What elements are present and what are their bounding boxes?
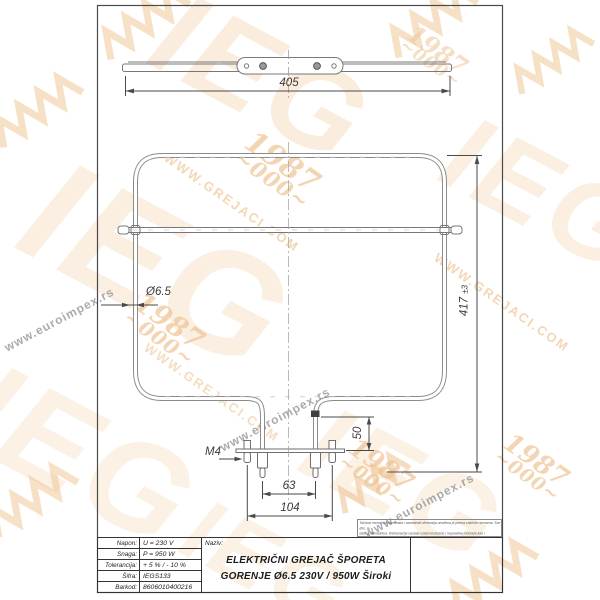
table-row: Snaga: P = 950 W [98,549,201,560]
title-block-empty-cell [410,538,502,592]
technical-drawing-page: IEG IEG IEG IEG IEG IEG 1987 ~000~ 1987 … [0,0,600,600]
dim-label-terminal-drop: 50 [352,419,364,447]
product-title-line2: GORENJE Ø6.5 230V / 950W Široki [202,571,410,582]
dim-label-terminal-spacing: 63 [269,480,309,492]
thread-leader [219,457,243,461]
spec-label-barkod: Barkod: [98,582,140,592]
spec-label-napon: Napon: [98,538,140,548]
spec-value-napon: U = 230 V [140,538,201,548]
spec-value-snaga: P = 950 W [140,549,201,559]
terminal-assembly [236,411,345,478]
title-block: Napon: U = 230 V Snaga: P = 950 W Tolera… [97,537,503,593]
product-title-line1: ELEKTRIČNI GREJAČ ŠPORETA [202,555,410,566]
bolt-right [329,453,336,463]
dim-label-height: 417 ±3 [459,271,474,331]
mounting-plate [236,449,345,453]
table-row: Napon: U = 230 V [98,538,201,549]
bolt-left [244,441,251,450]
leg-clip-mark [311,411,320,418]
table-row: Tolerancija: + 5 % / - 10 % [98,560,201,571]
spec-table: Napon: U = 230 V Snaga: P = 950 W Tolera… [98,538,201,592]
spec-value-sifra: IEGS133 [140,571,201,581]
dim-label-width: 405 [254,77,324,89]
table-row: Barkod: 8606010400216 [98,582,201,592]
bolt-right [329,441,336,450]
terminal-sleeve-right [311,453,321,469]
terminal-sleeve-left [258,453,268,469]
top-view-linework [123,58,452,75]
terminal-pin-right [313,468,318,478]
disclaimer-box: Tačnost mernih instrumenata i navedenih … [357,519,502,537]
dim-label-bolt-spacing: 104 [268,502,312,514]
spec-value-tolerancija: + 5 % / - 10 % [140,560,201,570]
bolt-left [244,453,251,463]
dim-label-diameter: Ø6.5 [146,286,171,298]
spec-label-tolerancija: Tolerancija: [98,560,140,570]
spec-value-barkod: 8606010400216 [140,582,201,592]
tube-diameter-dimension [101,303,158,307]
dim-label-thread: M4 [205,446,221,458]
terminal-pin-left [260,468,265,478]
naziv-block: Naziv: ELEKTRIČNI GREJAČ ŠPORETA GORENJE… [201,538,410,592]
spec-label-snaga: Snaga: [98,549,140,559]
heater-tube-outline [136,156,445,478]
support-bracket-bar [118,226,462,235]
table-row: Šifra: IEGS133 [98,571,201,582]
naziv-label: Naziv: [205,540,223,547]
disclaimer-text: Tačnost mernih instrumenata i navedenih … [358,520,502,537]
spec-label-sifra: Šifra: [98,571,140,581]
